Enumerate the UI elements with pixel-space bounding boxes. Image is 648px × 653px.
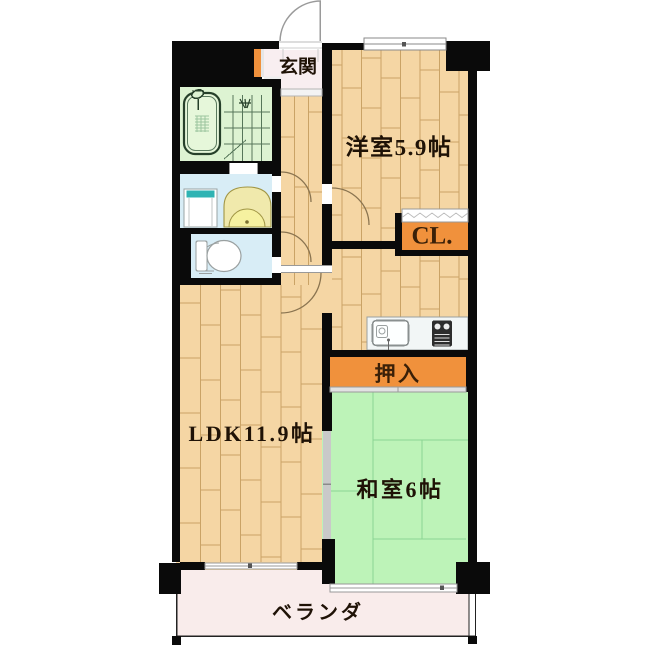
svg-text:洋室5.9帖: 洋室5.9帖 (346, 134, 453, 160)
svg-text:LDK11.9帖: LDK11.9帖 (189, 421, 316, 446)
svg-text:CL.: CL. (412, 223, 453, 250)
svg-text:和室6帖: 和室6帖 (356, 477, 443, 502)
svg-text:押入: 押入 (375, 362, 422, 386)
svg-text:ベランダ: ベランダ (272, 601, 364, 624)
svg-text:玄関: 玄関 (279, 56, 317, 78)
